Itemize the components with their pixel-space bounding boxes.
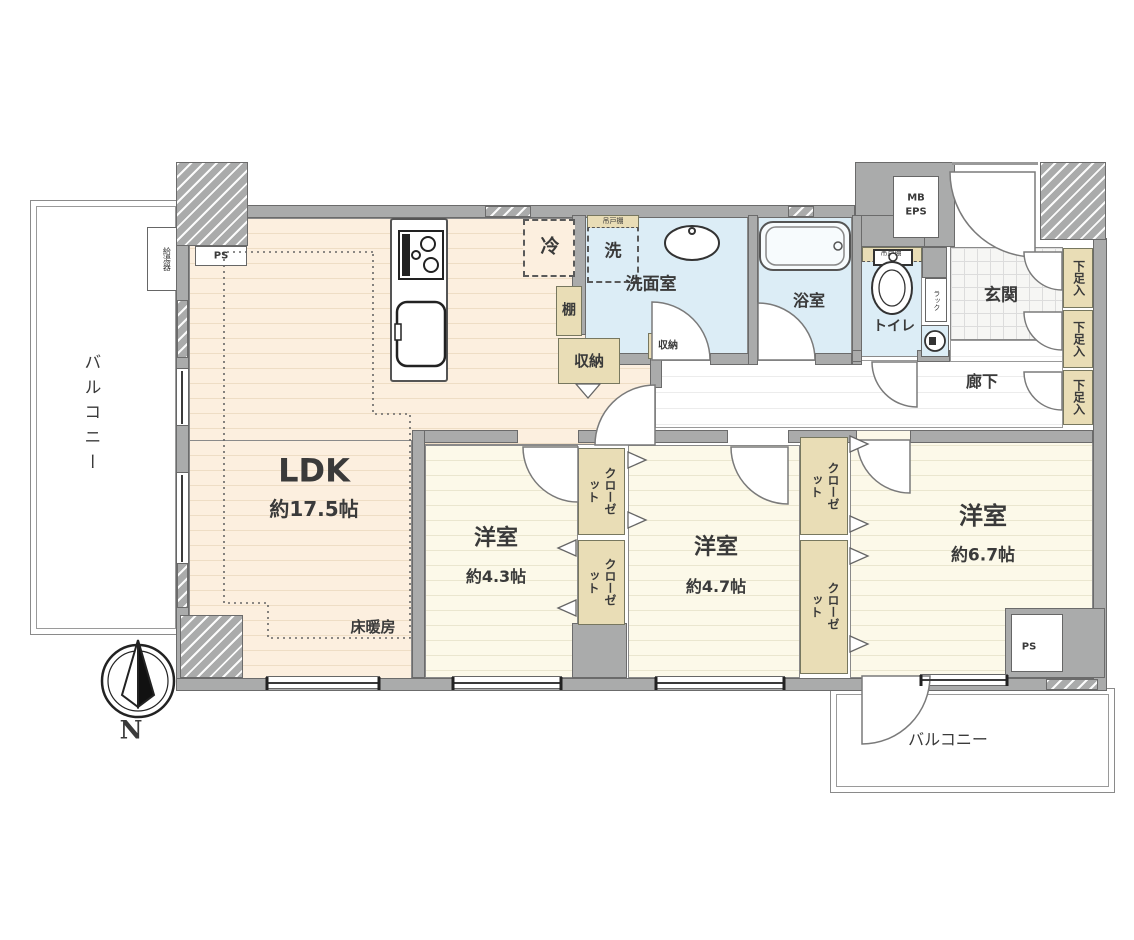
eps-label: EPS xyxy=(905,207,926,218)
wall-bedroom1-left xyxy=(412,430,425,678)
shelf-label: 棚 xyxy=(562,303,576,318)
window-bedroom47 xyxy=(655,676,785,689)
kitchen-counter xyxy=(390,218,448,382)
storage-ldk-label: 収納 xyxy=(574,353,604,370)
front-door-threshold xyxy=(952,162,1038,165)
ps-top-label: PS xyxy=(214,251,229,262)
hallway-label: 廊下 xyxy=(966,373,998,391)
shoe-cabinet-3-label: 下足入 xyxy=(1071,374,1084,420)
bedroom-6-7-name: 洋室 xyxy=(959,503,1007,529)
pillar-top-left xyxy=(176,162,248,246)
vent-left-a xyxy=(177,300,188,358)
bedroom-4-3-name: 洋室 xyxy=(474,527,518,551)
window-left-b xyxy=(176,472,189,564)
wall-corridor-stub xyxy=(650,358,662,388)
window-balcony-door xyxy=(920,674,1008,686)
toilet-label: トイレ xyxy=(873,319,915,334)
refrigerator-label: 冷 xyxy=(540,237,559,258)
room-toilet xyxy=(860,247,922,357)
pillar-top-right xyxy=(1040,162,1106,240)
bedroom-6-7-area: 約6.7帖 xyxy=(951,547,1015,566)
pillar-bottom-left xyxy=(180,615,243,678)
floor-plan: バルコニー バルコニー 給湯器 LDK 約17.5帖 床暖房 洋室 約4.3帖 … xyxy=(0,0,1134,940)
room-hallway xyxy=(655,360,1063,428)
entrance-label: 玄関 xyxy=(984,287,1018,306)
water-heater-label: 給湯器 xyxy=(162,239,171,279)
closet-2-upper-label: クローゼット xyxy=(807,460,841,512)
window-ldk-b xyxy=(452,676,562,689)
vent-left-b xyxy=(177,560,188,608)
bedroom-4-7-name: 洋室 xyxy=(694,536,738,560)
door-front xyxy=(950,172,1035,257)
room-bathroom xyxy=(758,215,852,362)
ps-box-bedroom xyxy=(1011,614,1063,672)
compass-north-label: N xyxy=(120,716,143,744)
entrance-step xyxy=(950,340,1063,362)
floor-heating-label: 床暖房 xyxy=(350,619,395,636)
hatch-top-a xyxy=(485,206,531,217)
hatch-top-b xyxy=(788,206,814,217)
room-bedroom-4-7 xyxy=(628,445,800,678)
room-bedroom-4-3 xyxy=(425,445,578,678)
shoe-cabinet-2-label: 下足入 xyxy=(1071,316,1084,362)
window-ldk-a xyxy=(266,676,380,689)
wall-toilet-right xyxy=(922,247,947,278)
bathroom-label: 浴室 xyxy=(793,292,825,310)
washer-label: 洗 xyxy=(605,243,622,262)
toilet-cupboard-label: 吊戸棚 xyxy=(881,250,902,258)
bedroom-4-3-area: 約4.3帖 xyxy=(466,568,526,586)
rack-label: ラック xyxy=(932,283,940,317)
compass-icon xyxy=(102,640,174,717)
wall-bath-toilet xyxy=(852,215,862,365)
wall-corridor-bottom-a xyxy=(412,430,518,443)
wall-corridor-bottom-d xyxy=(910,430,1093,443)
bedroom-4-7-area: 約4.7帖 xyxy=(686,578,746,596)
hand-basin-box xyxy=(921,325,949,357)
washer-cupboard-label: 吊戸棚 xyxy=(603,218,624,226)
shoe-cabinet-1-label: 下足入 xyxy=(1071,255,1084,301)
closet-2-lower-label: クローゼット xyxy=(807,580,841,632)
storage-washroom-label: 収納 xyxy=(658,341,678,352)
wall-closet1-below xyxy=(572,623,627,678)
wall-corridor-bottom-b xyxy=(578,430,728,443)
ldk-name: LDK xyxy=(278,453,350,488)
window-left-a xyxy=(176,368,189,426)
closet-1-lower-label: クローゼット xyxy=(584,556,618,608)
ps-bedroom-label: PS xyxy=(1022,642,1037,653)
wall-bath-bottom xyxy=(815,353,852,365)
closet-1-upper-label: クローゼット xyxy=(584,465,618,517)
balcony-left-label: バルコニー xyxy=(81,340,100,490)
washroom-label: 洗面室 xyxy=(626,276,677,295)
mb-label: MB xyxy=(907,193,925,204)
hatch-bottom-right xyxy=(1046,679,1098,690)
wall-bath-divider xyxy=(748,215,758,365)
balcony-bottom-label: バルコニー xyxy=(908,731,988,749)
ldk-area: 約17.5帖 xyxy=(269,498,358,520)
wall-toilet-bottom-a xyxy=(852,350,862,362)
